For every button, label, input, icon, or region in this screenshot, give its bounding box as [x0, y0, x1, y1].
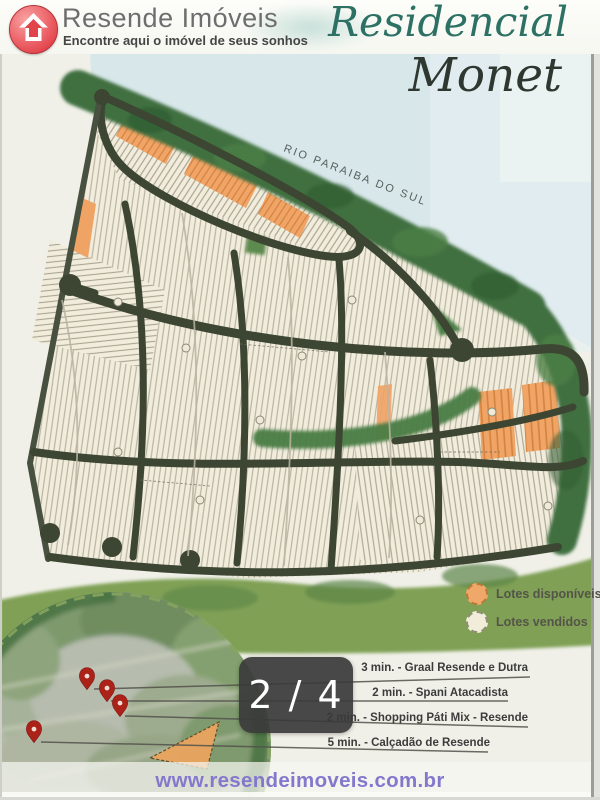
- legend-label: Lotes vendidos: [496, 615, 588, 629]
- dashed-circle-icon: [466, 611, 488, 633]
- development-title-line2: Monet: [409, 48, 562, 103]
- lot-legend: Lotes disponíveis Lotes vendidos: [466, 580, 600, 636]
- development-title-line1: Residencial: [328, 0, 568, 46]
- distance-item: 5 min. - Calçadão de Resende: [328, 737, 490, 749]
- distance-item: 2 min. - Spani Atacadista: [372, 687, 508, 699]
- legend-row-available: Lotes disponíveis: [466, 580, 600, 608]
- website-url-link[interactable]: www.resendeimoveis.com.br: [0, 769, 600, 793]
- photo-counter-badge[interactable]: 2 / 4: [239, 657, 353, 733]
- legend-row-sold: Lotes vendidos: [466, 608, 600, 636]
- brand-name: Resende Imóveis: [62, 3, 278, 34]
- legend-label: Lotes disponíveis: [496, 587, 600, 601]
- distance-item: 2 min. - Shopping Páti Mix - Resende: [327, 712, 528, 724]
- brand-tagline: Encontre aqui o imóvel de seus sonhos: [63, 33, 308, 48]
- dashed-circle-icon: [466, 583, 488, 605]
- distance-item: 3 min. - Graal Resende e Dutra: [361, 662, 528, 674]
- listing-photo: RIO PARAIBA DO SUL: [0, 0, 600, 800]
- brand-logo: [9, 5, 58, 54]
- house-arrow-icon: [10, 6, 57, 53]
